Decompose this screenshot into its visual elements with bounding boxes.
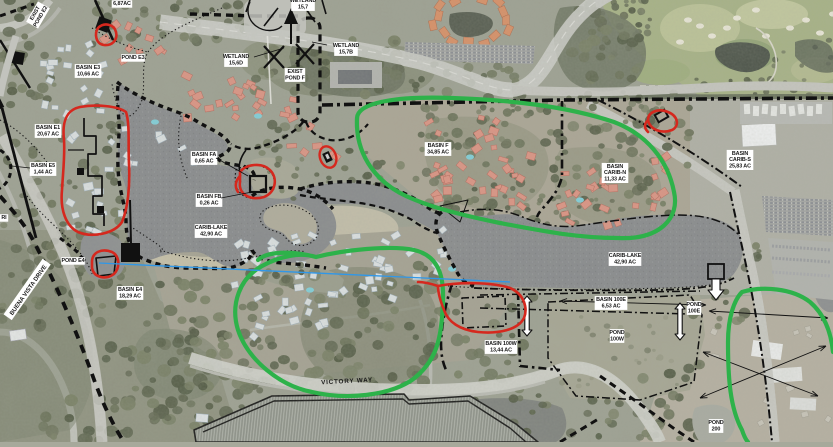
svg-text:42,90 AC: 42,90 AC	[614, 259, 636, 265]
svg-text:BASIN E3: BASIN E3	[76, 65, 100, 71]
svg-text:11,33 AC: 11,33 AC	[604, 176, 626, 182]
svg-text:BASIN FB: BASIN FB	[197, 194, 222, 200]
svg-text:6,87AC: 6,87AC	[113, 1, 131, 7]
svg-text:13,44 AC: 13,44 AC	[490, 347, 512, 353]
svg-text:BASIN F: BASIN F	[428, 143, 450, 149]
svg-text:100E: 100E	[688, 308, 701, 314]
svg-text:15,6D: 15,6D	[229, 60, 243, 66]
svg-text:BASIN E5: BASIN E5	[31, 163, 55, 169]
svg-text:WETLAND: WETLAND	[223, 54, 249, 60]
svg-text:POND: POND	[609, 330, 624, 336]
svg-text:15,7B: 15,7B	[339, 49, 353, 55]
svg-text:POND F: POND F	[285, 75, 306, 81]
svg-text:CARIB-N: CARIB-N	[604, 170, 626, 176]
svg-text:0,65 AC: 0,65 AC	[195, 158, 214, 164]
svg-text:POND E4: POND E4	[62, 258, 85, 264]
svg-text:0,26 AC: 0,26 AC	[200, 200, 219, 206]
svg-text:EXIST: EXIST	[287, 69, 303, 75]
svg-text:BASIN 100E: BASIN 100E	[596, 297, 626, 303]
svg-text:CARIB-S: CARIB-S	[729, 157, 751, 163]
svg-text:200: 200	[712, 426, 721, 432]
svg-text:15,7: 15,7	[298, 4, 308, 10]
svg-text:1,44 AC: 1,44 AC	[34, 169, 53, 175]
svg-text:BASIN FA: BASIN FA	[192, 152, 217, 158]
svg-text:CARIB-LAKE: CARIB-LAKE	[195, 225, 228, 231]
svg-text:6,53 AC: 6,53 AC	[602, 303, 621, 309]
svg-text:10,66 AC: 10,66 AC	[77, 71, 99, 77]
svg-text:BASIN 100W: BASIN 100W	[485, 341, 517, 347]
svg-text:18,29 AC: 18,29 AC	[119, 293, 141, 299]
svg-text:BASIN E4: BASIN E4	[118, 287, 142, 293]
svg-text:RI: RI	[1, 215, 7, 221]
svg-text:BASIN: BASIN	[732, 151, 748, 157]
svg-text:34,85 AC: 34,85 AC	[427, 149, 449, 155]
svg-text:25,83 AC: 25,83 AC	[729, 163, 751, 169]
svg-text:POND E3: POND E3	[122, 55, 145, 61]
svg-text:WETLAND: WETLAND	[333, 43, 359, 49]
svg-text:POND: POND	[686, 302, 701, 308]
svg-text:20,67 AC: 20,67 AC	[37, 131, 59, 137]
svg-text:100W: 100W	[610, 336, 625, 342]
svg-text:BASIN E1: BASIN E1	[36, 125, 60, 131]
svg-text:BASIN: BASIN	[607, 164, 623, 170]
svg-text:42,90 AC: 42,90 AC	[200, 231, 222, 237]
svg-text:POND: POND	[708, 420, 723, 426]
svg-text:CARIB-LAKE: CARIB-LAKE	[609, 253, 642, 259]
